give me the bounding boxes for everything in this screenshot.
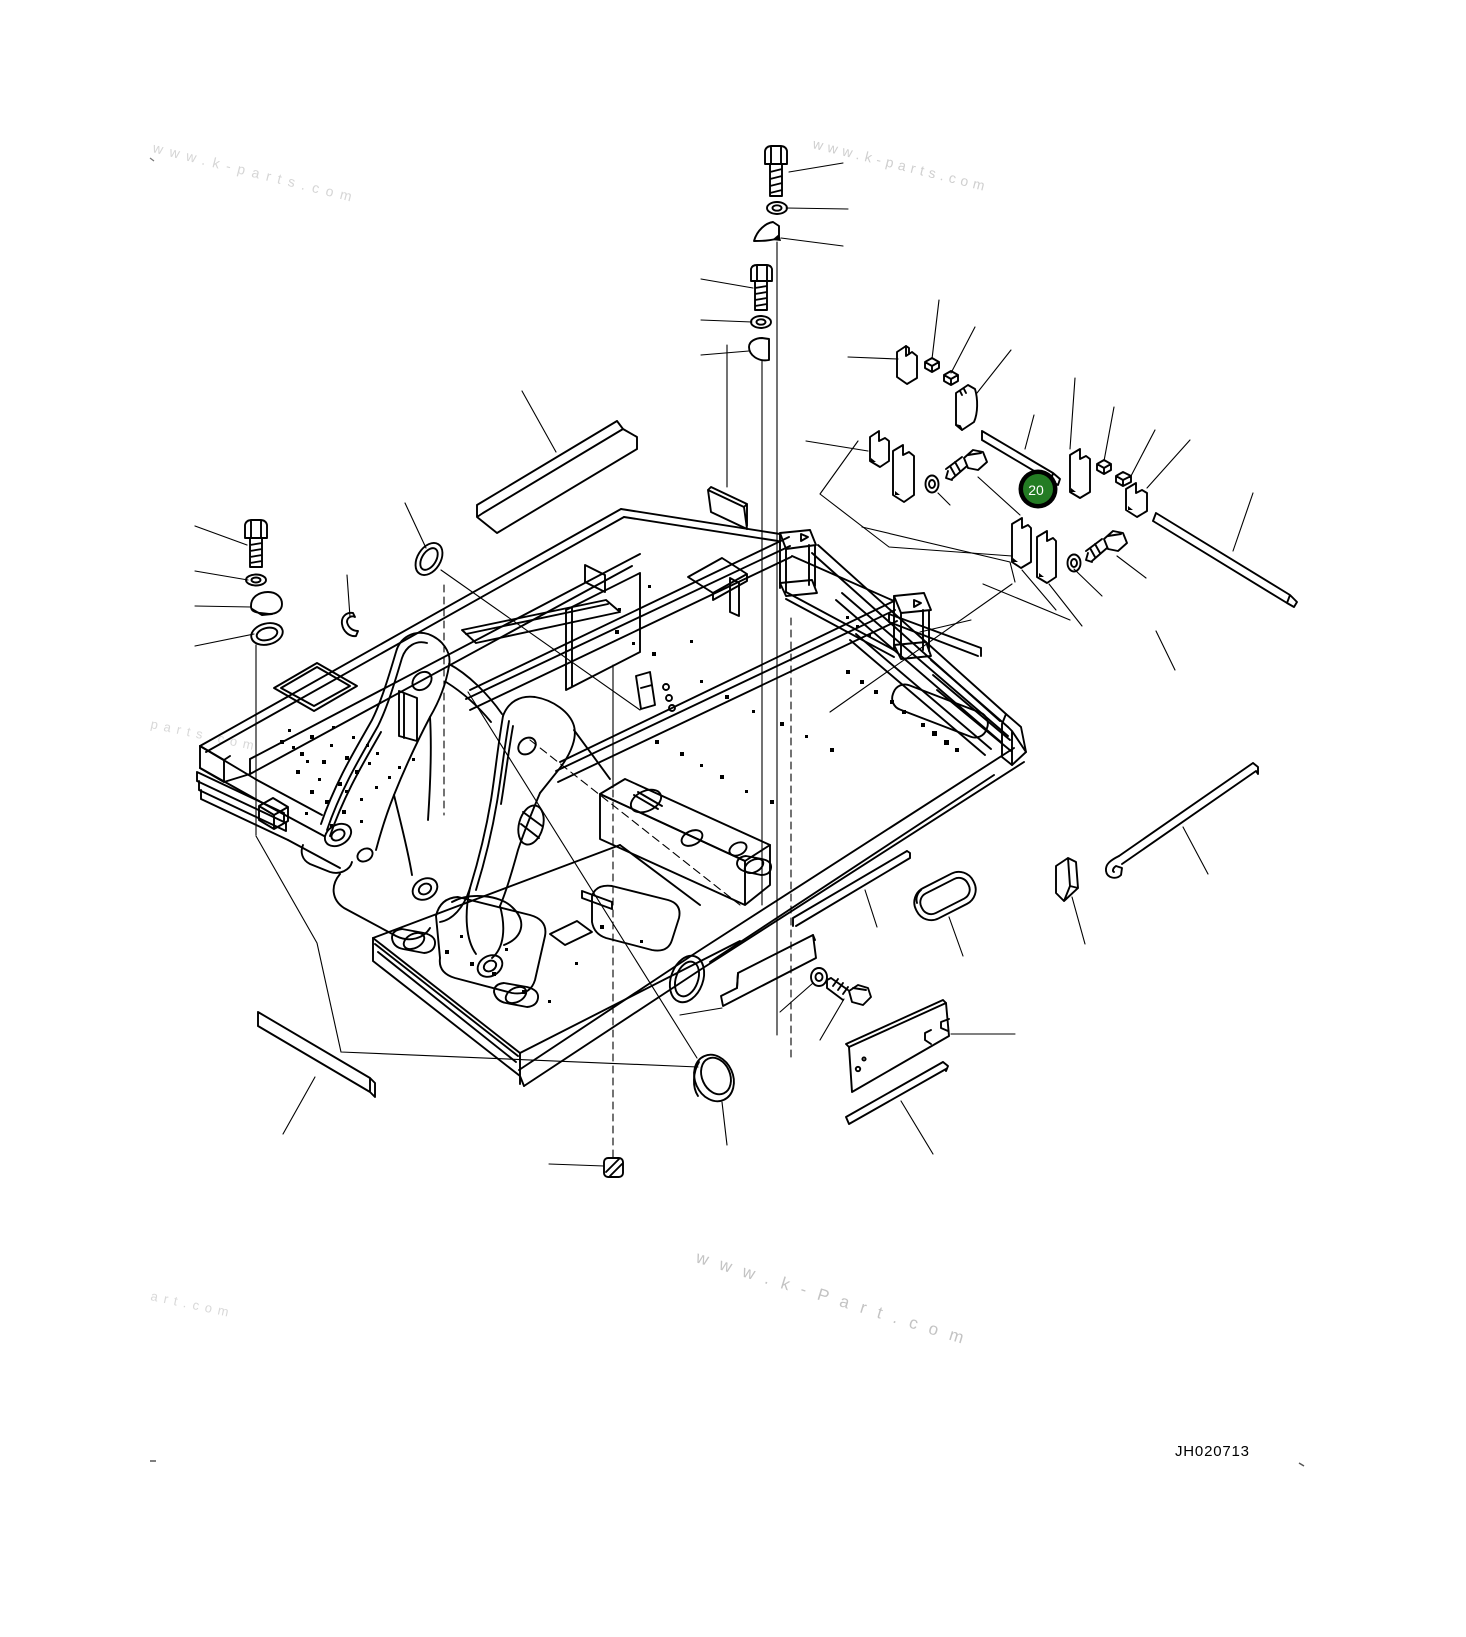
svg-text:20: 20 xyxy=(1028,482,1044,498)
svg-text:JH020713: JH020713 xyxy=(1175,1443,1250,1460)
